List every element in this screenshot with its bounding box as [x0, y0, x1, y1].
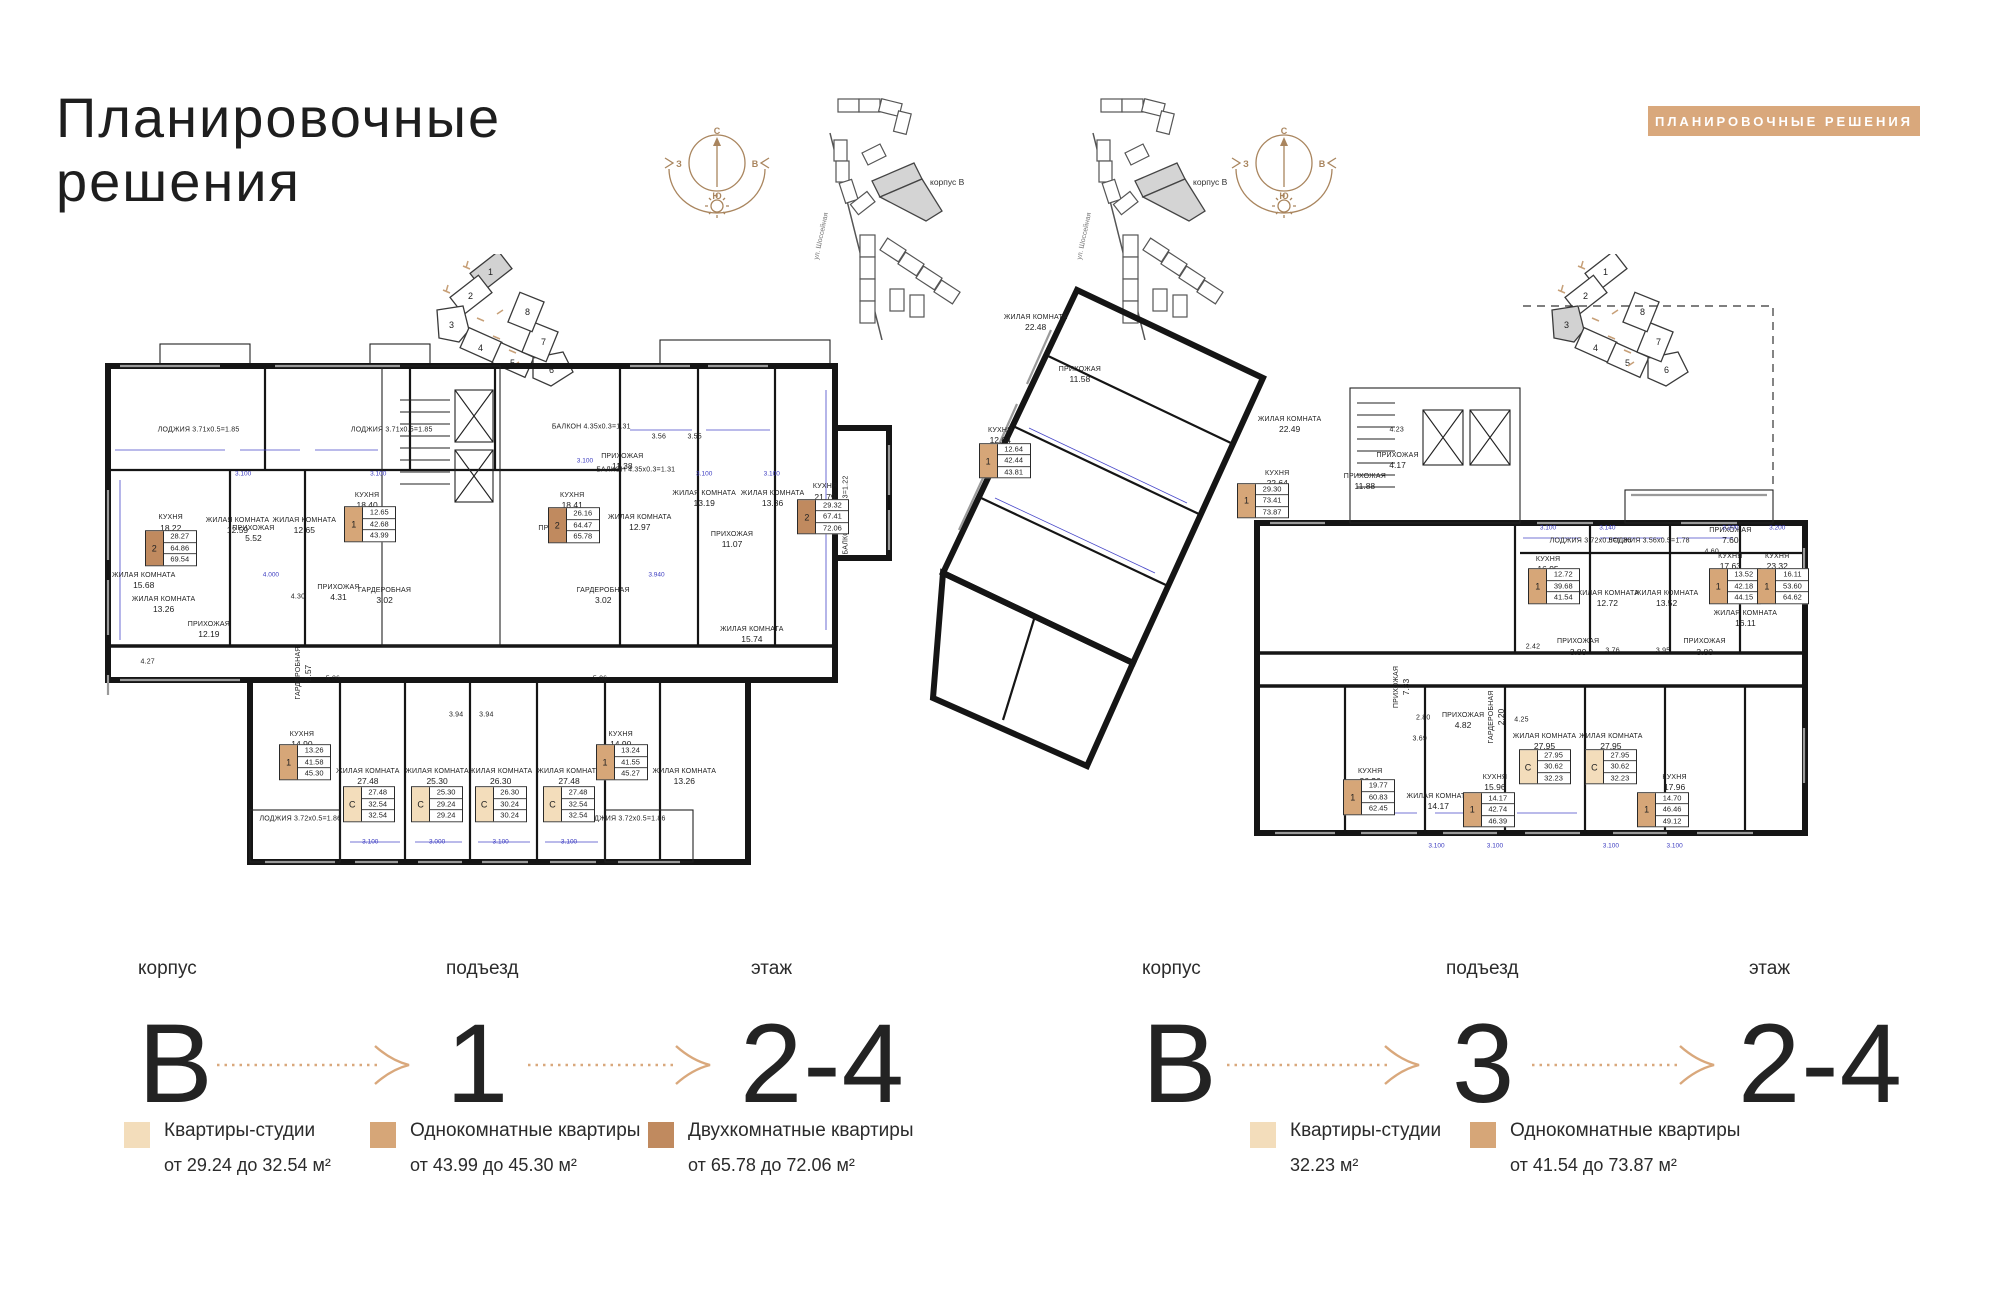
page-title-line2: решения	[56, 150, 501, 214]
legend-item: Квартиры-студии32.23 м²	[1250, 1120, 1441, 1176]
room-label: 3.69	[1412, 735, 1426, 744]
entrance-caption: подъезд	[446, 958, 519, 980]
floor-value: 2-4	[1738, 1008, 1903, 1120]
legend-title: Однокомнатные квартиры	[410, 1120, 640, 1142]
legend-swatch	[370, 1122, 396, 1148]
room-label: ПРИХОЖАЯ4.17	[1376, 451, 1418, 471]
apartment-badge[interactable]: 113.2441.5545.27	[596, 744, 648, 780]
apartment-badge[interactable]: 129.3073.4173.87	[1237, 483, 1289, 519]
room-label: ПРИХОЖАЯ11.07	[711, 530, 753, 550]
entrance-caption: подъезд	[1446, 958, 1519, 980]
legend-range: 32.23 м²	[1290, 1155, 1441, 1176]
entrance-value: 3	[1452, 1008, 1515, 1120]
building-value: В	[138, 1008, 214, 1120]
apartment-badge[interactable]: 113.5242.1844.15	[1709, 568, 1761, 604]
dimension-label: 3.100	[696, 471, 712, 478]
legend-title: Квартиры-студии	[164, 1120, 331, 1142]
apartment-badge[interactable]: С25.3029.2429.24	[411, 786, 463, 822]
apartment-badge[interactable]: 112.6542.6843.99	[344, 506, 396, 542]
apartment-type: 1	[597, 745, 615, 779]
room-label: ПРИХОЖАЯ4.31	[317, 583, 359, 603]
svg-text:3: 3	[449, 320, 454, 330]
room-label: ЖИЛАЯ КОМНАТА15.68	[112, 571, 176, 591]
apartment-badge[interactable]: С27.4832.5432.54	[343, 786, 395, 822]
building-value: В	[1142, 1008, 1218, 1120]
room-label: ЖИЛАЯ КОМНАТА13.26	[132, 595, 196, 615]
room-label: ПРИХОЖАЯ11.88	[1344, 472, 1386, 492]
room-label: ГАРДЕРОБНАЯ3.02	[358, 586, 411, 606]
room-label: ЛОДЖИЯ 3.71х0.5=1.85	[158, 425, 240, 434]
street-label: ул. Шоссейная	[1075, 212, 1093, 261]
floor-plan-right: ЖИЛАЯ КОМНАТА22.48ПРИХОЖАЯ11.58КУХНЯ12.6…	[925, 268, 1810, 880]
room-label: 3.94	[449, 710, 463, 719]
dimension-label: 3.100	[370, 471, 386, 478]
apartment-badge[interactable]: 114.1742.7446.39	[1463, 792, 1515, 828]
compass-west: З	[676, 159, 682, 169]
dimension-label: 3.940	[648, 572, 664, 579]
floor-caption: этаж	[751, 958, 792, 980]
room-label: 3.95	[1656, 647, 1670, 656]
legend-title: Двухкомнатные квартиры	[688, 1120, 914, 1142]
legend-range: от 43.99 до 45.30 м²	[410, 1155, 640, 1176]
room-label: 2.42	[1526, 643, 1540, 652]
dimension-label: 3.100	[362, 839, 378, 846]
room-label: 4.25	[1514, 715, 1528, 724]
legend-swatch	[648, 1122, 674, 1148]
room-label: КУХНЯ17.96	[1662, 773, 1686, 793]
room-label: 4.27	[140, 658, 154, 667]
room-label: 2.80	[1416, 713, 1430, 722]
svg-text:1: 1	[488, 267, 493, 277]
building-caption: корпус	[1142, 958, 1201, 980]
apartment-badge[interactable]: 119.7760.8362.45	[1343, 780, 1395, 816]
legend-swatch	[124, 1122, 150, 1148]
arrow-right-icon	[526, 1042, 716, 1088]
apartment-type: 2	[146, 531, 164, 565]
dimension-label: 3.140	[1599, 525, 1615, 532]
apartment-type: С	[344, 787, 362, 821]
apartment-badge[interactable]: 229.3267.4172.06	[797, 499, 849, 535]
dimension-label: 4.000	[263, 572, 279, 579]
legend-title: Квартиры-студии	[1290, 1120, 1441, 1142]
legend-item: Однокомнатные квартирыот 43.99 до 45.30 …	[370, 1120, 640, 1176]
room-label: ПРИХОЖАЯ5.52	[232, 524, 274, 544]
apartment-type: С	[412, 787, 430, 821]
svg-text:2: 2	[468, 291, 473, 301]
room-label: БАЛКОН 4.35х0.3=1.31	[552, 422, 631, 431]
apartment-badge[interactable]: С27.9530.6232.23	[1585, 749, 1637, 785]
apartment-badge[interactable]: 114.7046.4649.12	[1637, 792, 1689, 828]
floor-plan-left: ЛОДЖИЯ 3.71х0.5=1.85ЛОДЖИЯ 3.71х0.5=1.85…	[100, 330, 895, 875]
floor-caption: этаж	[1749, 958, 1790, 980]
room-label: 4.23	[1389, 426, 1403, 435]
legend-title: Однокомнатные квартиры	[1510, 1120, 1740, 1142]
page-title: Планировочные решения	[56, 86, 501, 214]
apartment-type: 1	[280, 745, 298, 779]
room-label: ЛОДЖИЯ 3.56х0.5=1.78	[1608, 536, 1690, 545]
apartment-type: С	[476, 787, 494, 821]
arrow-right-icon	[215, 1042, 415, 1088]
building-caption: корпус	[138, 958, 197, 980]
dimension-label: 3.200	[1769, 525, 1785, 532]
compass-north: С	[714, 126, 721, 136]
building-label: корпус В	[1193, 177, 1228, 187]
room-label: КУХНЯ15.96	[1483, 773, 1507, 793]
apartment-type: 1	[345, 507, 363, 541]
room-label: ГАРДЕРОБНАЯ2.20	[1487, 691, 1507, 744]
apartment-type: 1	[1344, 781, 1362, 815]
dimension-label: 3.100	[1540, 525, 1556, 532]
apartment-type: 1	[1710, 569, 1728, 603]
compass-east: В	[752, 159, 759, 169]
apartment-type: С	[1586, 750, 1604, 784]
room-label: ЛОДЖИЯ 3.71х0.5=1.85	[351, 425, 433, 434]
apartment-type: С	[544, 787, 562, 821]
room-label: ЖИЛАЯ КОМНАТА26.30	[469, 767, 533, 787]
apartment-badge[interactable]: С27.9530.6232.23	[1519, 749, 1571, 785]
room-label: ПРИХОЖАЯ4.82	[1442, 711, 1484, 731]
room-label: ПРИХОЖАЯ7.33	[1392, 666, 1412, 708]
legend-item: Квартиры-студииот 29.24 до 32.54 м²	[124, 1120, 331, 1176]
apartment-type: 2	[798, 500, 816, 534]
apartment-type: 1	[1758, 569, 1776, 603]
room-label: ГАРДЕРОБНАЯ2.57	[293, 647, 313, 700]
room-label: ЖИЛАЯ КОМНАТА13.36	[741, 489, 805, 509]
room-label: ЖИЛАЯ КОМНАТА13.19	[672, 489, 736, 509]
dimension-label: 3.100	[235, 471, 251, 478]
dimension-label: 3.100	[1487, 843, 1503, 850]
room-label: ЖИЛАЯ КОМНАТА22.49	[1258, 415, 1322, 435]
room-label: 3.76	[1605, 647, 1619, 656]
dimension-label: 3.100	[1603, 843, 1619, 850]
apartment-type: 1	[980, 444, 998, 478]
apartment-badge[interactable]: 112.7239.6841.54	[1528, 568, 1580, 604]
apartment-type: 1	[1638, 793, 1656, 827]
room-label: ЖИЛАЯ КОМНАТА12.97	[608, 513, 672, 533]
room-label: ЖИЛАЯ КОМНАТА25.30	[405, 767, 469, 787]
room-label: ПРИХОЖАЯ11.38	[601, 452, 643, 472]
room-label: ЖИЛАЯ КОМНАТА15.74	[720, 625, 784, 645]
floor-value: 2-4	[740, 1008, 905, 1120]
dimension-label: 3.100	[764, 471, 780, 478]
compass-east: В	[1319, 159, 1326, 169]
floor-plan-labels: ЖИЛАЯ КОМНАТА22.48ПРИХОЖАЯ11.58КУХНЯ12.6…	[925, 268, 1810, 880]
svg-text:8: 8	[525, 307, 530, 317]
dimension-label: 3.100	[561, 839, 577, 846]
legend-swatch	[1250, 1122, 1276, 1148]
room-label: 5.06	[593, 674, 607, 683]
entrance-value: 1	[446, 1008, 509, 1120]
room-label: ЖИЛАЯ КОМНАТА27.48	[537, 767, 601, 787]
legend-swatch	[1470, 1122, 1496, 1148]
page-title-line1: Планировочные	[56, 86, 501, 150]
section-badge[interactable]: ПЛАНИРОВОЧНЫЕ РЕШЕНИЯ	[1648, 106, 1920, 136]
room-label: ЖИЛАЯ КОМНАТА12.65	[273, 516, 337, 536]
floor-plan-labels: ЛОДЖИЯ 3.71х0.5=1.85ЛОДЖИЯ 3.71х0.5=1.85…	[100, 330, 895, 875]
room-label: 3.55	[687, 433, 701, 442]
apartment-type: 1	[1464, 793, 1482, 827]
apartment-type: 1	[1529, 569, 1547, 603]
room-label: 3.94	[479, 710, 493, 719]
room-label: 5.06	[326, 674, 340, 683]
arrow-right-icon	[1225, 1042, 1425, 1088]
legend-range: от 65.78 до 72.06 м²	[688, 1155, 914, 1176]
compass-icon: С Ю З В	[655, 105, 780, 220]
apartment-badge[interactable]: 113.2641.5845.30	[279, 744, 331, 780]
apartment-type: 2	[549, 508, 567, 542]
legend-range: от 41.54 до 73.87 м²	[1510, 1155, 1740, 1176]
apartment-badge[interactable]: 116.1153.6064.62	[1757, 568, 1809, 604]
room-label: 3.56	[652, 433, 666, 442]
room-label: ГАРДЕРОБНАЯ3.02	[577, 586, 630, 606]
legend-item: Двухкомнатные квартирыот 65.78 до 72.06 …	[648, 1120, 914, 1176]
dimension-label: 3.100	[493, 839, 509, 846]
page: Планировочные решения ПЛАНИРОВОЧНЫЕ РЕШЕ…	[0, 0, 2000, 1307]
legend-range: от 29.24 до 32.54 м²	[164, 1155, 331, 1176]
apartment-badge[interactable]: С27.4832.5432.54	[543, 786, 595, 822]
room-label: ЖИЛАЯ КОМНАТА13.52	[1635, 589, 1699, 609]
street-label: ул. Шоссейная	[812, 212, 830, 261]
apartment-badge[interactable]: 226.1664.4765.78	[548, 507, 600, 543]
room-label: ПРИХОЖАЯ3.80	[1684, 637, 1726, 657]
highlighted-building[interactable]	[1135, 163, 1205, 221]
room-label: 4.30	[291, 592, 305, 601]
room-label: ЖИЛАЯ КОМНАТА14.17	[1407, 792, 1471, 812]
dimension-label: 3.100	[1666, 843, 1682, 850]
dimension-label: 3.000	[429, 839, 445, 846]
apartment-type: С	[1520, 750, 1538, 784]
dimension-label: 3.100	[1428, 843, 1444, 850]
apartment-type: 1	[1238, 484, 1256, 518]
room-label: ЛОДЖИЯ 3.72х0.5=1.86	[259, 815, 341, 824]
room-label: 4.60	[1705, 547, 1719, 556]
building-label: корпус В	[930, 177, 965, 187]
dimension-label: 3.100	[577, 457, 593, 464]
apartment-badge[interactable]: 112.6442.4443.81	[979, 443, 1031, 479]
room-label: ЖИЛАЯ КОМНАТА16.11	[1714, 609, 1778, 629]
room-label: ПРИХОЖАЯ3.80	[1557, 637, 1599, 657]
apartment-badge[interactable]: 228.2764.8669.54	[145, 530, 197, 566]
room-label: ЛОДЖИЯ 3.72х0.5=1.86	[584, 815, 666, 824]
room-label: ПРИХОЖАЯ11.58	[1059, 365, 1101, 385]
room-label: ЖИЛАЯ КОМНАТА27.48	[336, 767, 400, 787]
legend-item: Однокомнатные квартирыот 41.54 до 73.87 …	[1470, 1120, 1740, 1176]
room-label: ЖИЛАЯ КОМНАТА13.26	[653, 767, 717, 787]
highlighted-building[interactable]	[872, 163, 942, 221]
dimension-label: 3.200	[1722, 525, 1738, 532]
apartment-badge[interactable]: С26.3030.2430.24	[475, 786, 527, 822]
room-label: ЖИЛАЯ КОМНАТА12.72	[1576, 589, 1640, 609]
arrow-right-icon	[1530, 1042, 1720, 1088]
compass-north: С	[1281, 126, 1288, 136]
room-label: ЖИЛАЯ КОМНАТА22.48	[1004, 313, 1068, 333]
room-label: ПРИХОЖАЯ12.19	[188, 620, 230, 640]
